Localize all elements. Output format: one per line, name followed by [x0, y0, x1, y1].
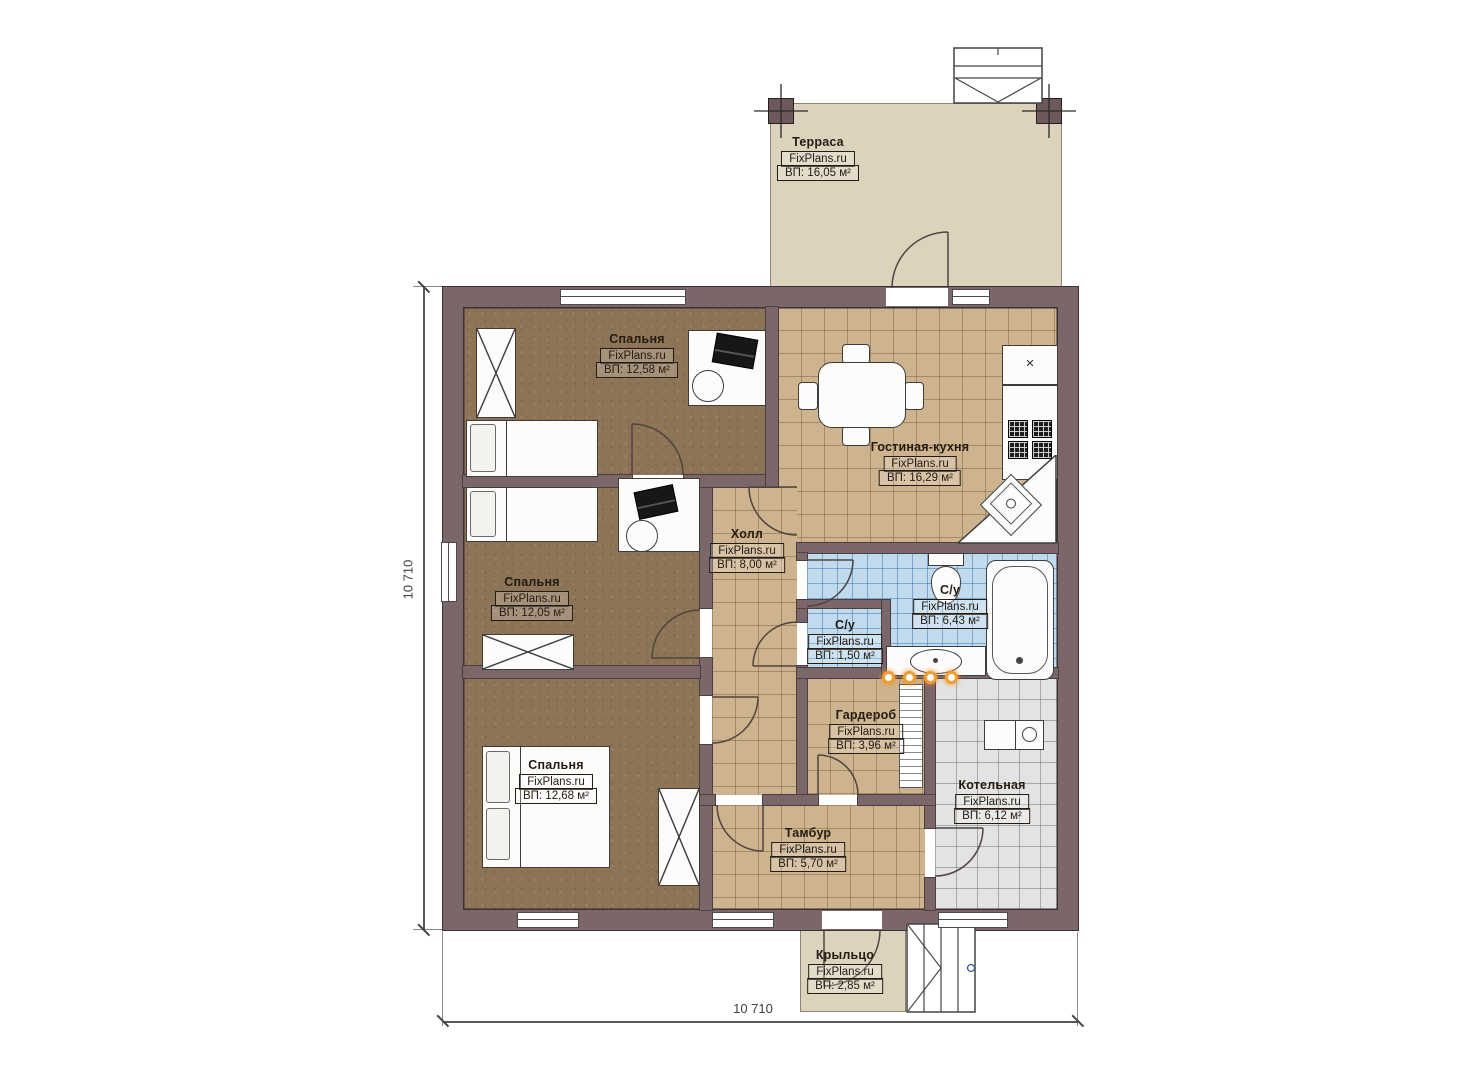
door-opening — [822, 911, 882, 929]
bed-blanket-line — [506, 420, 507, 477]
office-chair — [692, 370, 724, 402]
wall-segment — [700, 745, 712, 910]
room-area: ВП: 12,05 м² — [491, 605, 573, 621]
room-name: Тамбур — [785, 826, 832, 840]
dimension-line-left — [423, 287, 425, 930]
stove-burner — [1032, 420, 1052, 438]
room-area: ВП: 12,58 м² — [596, 362, 678, 378]
room-label-porch: Крыльцо FixPlans.ru ВП: 2,85 м² — [807, 948, 883, 994]
fridge: × — [1002, 345, 1058, 385]
wardrobe — [482, 634, 574, 670]
pillow — [486, 751, 510, 803]
terrace-floor — [770, 103, 1062, 289]
window — [712, 912, 774, 928]
terrace-stairs — [953, 47, 1043, 104]
room-label-wardrobe: Гардероб FixPlans.ru ВП: 3,96 м² — [828, 708, 904, 754]
room-area: ВП: 12,68 м² — [515, 788, 597, 804]
room-area: ВП: 2,85 м² — [807, 978, 883, 994]
wall-segment — [925, 676, 935, 828]
room-area: ВП: 8,00 м² — [709, 557, 785, 573]
wall-segment — [797, 666, 807, 805]
room-area: ВП: 5,70 м² — [770, 856, 846, 872]
porch-stairs — [906, 923, 976, 1013]
window — [938, 912, 1008, 928]
wall-segment — [797, 600, 890, 608]
office-chair — [626, 520, 658, 552]
spotlight-dot — [882, 671, 895, 684]
room-name: С/у — [835, 618, 855, 632]
room-label-bedroom-middle: Спальня FixPlans.ru ВП: 12,05 м² — [491, 575, 573, 621]
wall-segment — [700, 658, 712, 695]
bathtub-drain — [1016, 657, 1023, 664]
room-area: ВП: 1,50 м² — [807, 648, 883, 664]
pillow — [470, 424, 496, 472]
stove-burner — [1032, 441, 1052, 459]
room-name: Холл — [731, 527, 763, 541]
extension-line — [413, 286, 443, 287]
extension-line — [1077, 932, 1078, 1026]
room-label-hall: Холл FixPlans.ru ВП: 8,00 м² — [709, 527, 785, 573]
chair — [798, 382, 818, 410]
spotlight-dot — [945, 671, 958, 684]
wall-segment — [763, 795, 818, 805]
room-name: Гостиная-кухня — [871, 440, 970, 454]
room-name: Терраса — [792, 135, 844, 149]
room-name: Спальня — [609, 332, 664, 346]
chair — [904, 382, 924, 410]
wall-segment — [797, 543, 1058, 553]
stove-burner — [1008, 420, 1028, 438]
room-label-bedroom-bottom: Спальня FixPlans.ru ВП: 12,68 м² — [515, 758, 597, 804]
room-area: ВП: 6,12 м² — [954, 808, 1030, 824]
window — [560, 289, 686, 305]
pillow — [486, 808, 510, 860]
dining-table — [818, 362, 906, 428]
pillow — [470, 491, 496, 537]
room-name: Котельная — [958, 778, 1025, 792]
wardrobe — [476, 328, 516, 418]
boiler-dial — [1022, 727, 1037, 742]
room-area: ВП: 16,29 м² — [879, 470, 961, 486]
room-name: Крыльцо — [816, 948, 874, 962]
room-label-bedroom-top: Спальня FixPlans.ru ВП: 12,58 м² — [596, 332, 678, 378]
room-name: Гардероб — [836, 708, 897, 722]
extension-line — [413, 929, 443, 930]
stove-burner — [1008, 441, 1028, 459]
wall-segment — [858, 795, 935, 805]
room-label-living-kitchen: Гостиная-кухня FixPlans.ru ВП: 16,29 м² — [871, 440, 970, 486]
wall-segment — [700, 795, 715, 805]
window — [517, 912, 579, 928]
wall-segment — [766, 307, 778, 487]
room-area: ВП: 16,05 м² — [777, 165, 859, 181]
wardrobe — [658, 788, 700, 886]
room-label-bathroom: С/у FixPlans.ru ВП: 6,43 м² — [912, 583, 988, 629]
toilet-tank — [928, 553, 964, 566]
chair — [842, 426, 870, 446]
room-label-boiler: Котельная FixPlans.ru ВП: 6,12 м² — [954, 778, 1030, 824]
room-name: С/у — [940, 583, 960, 597]
room-label-terrace: Терраса FixPlans.ru ВП: 16,05 м² — [777, 135, 859, 181]
room-area: ВП: 6,43 м² — [912, 613, 988, 629]
spotlight-dot — [903, 671, 916, 684]
wall-segment — [925, 878, 935, 910]
door-opening — [886, 288, 948, 306]
room-label-wc: С/у FixPlans.ru ВП: 1,50 м² — [807, 618, 883, 664]
spotlight-dot — [924, 671, 937, 684]
column — [768, 98, 794, 124]
boiler-divider — [1015, 721, 1016, 749]
bathtub — [986, 560, 1054, 680]
dimension-label-left: 10 710 — [401, 548, 416, 612]
floor-plan: × — [0, 0, 1473, 1080]
dimension-line-bottom — [443, 1021, 1078, 1023]
wall-segment — [797, 553, 807, 560]
window — [952, 289, 990, 305]
dimension-label-bottom: 10 710 — [718, 1001, 788, 1016]
washbasin-drain — [933, 658, 938, 663]
bed-blanket-line — [506, 487, 507, 542]
extension-line — [442, 932, 443, 1026]
column — [1036, 98, 1062, 124]
room-label-vestibule: Тамбур FixPlans.ru ВП: 5,70 м² — [770, 826, 846, 872]
window — [441, 542, 457, 602]
room-name: Спальня — [504, 575, 559, 589]
room-name: Спальня — [528, 758, 583, 772]
room-area: ВП: 3,96 м² — [828, 738, 904, 754]
chair — [842, 344, 870, 364]
boiler-unit — [984, 720, 1044, 750]
